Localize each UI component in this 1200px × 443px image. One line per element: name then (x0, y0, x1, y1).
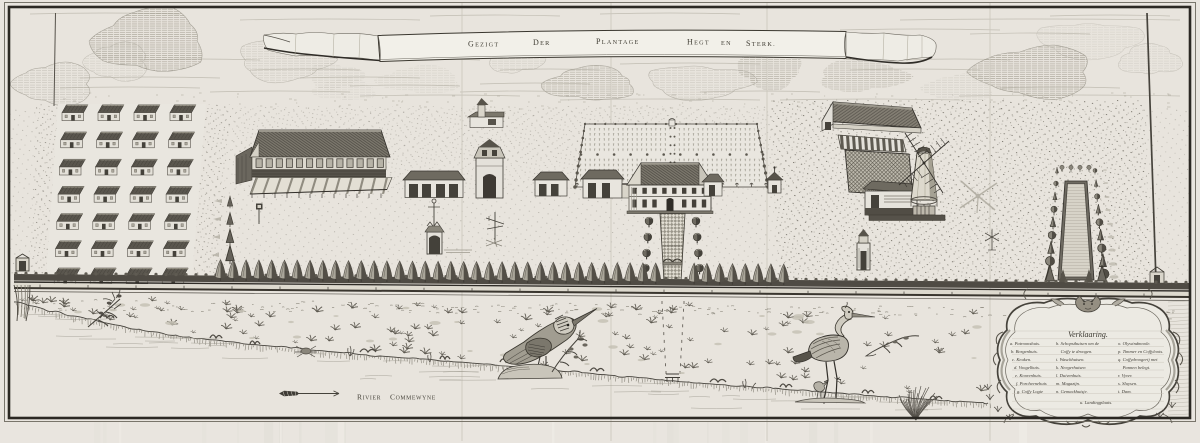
svg-text:DER: DER (533, 38, 551, 47)
svg-text:d. Voogelhuis.: d. Voogelhuis. (1014, 365, 1040, 370)
svg-text:r. Vyver.: r. Vyver. (1118, 373, 1133, 378)
svg-text:i. Waschhuisen.: i. Waschhuisen. (1056, 357, 1085, 362)
svg-text:q. Coffydroogerij met: q. Coffydroogerij met (1118, 357, 1158, 362)
svg-text:Verklaaring.: Verklaaring. (1068, 330, 1108, 339)
svg-text:l. Duivenhuis.: l. Duivenhuis. (1056, 373, 1082, 378)
svg-text:p. Timmer en Coffyloots.: p. Timmer en Coffyloots. (1117, 349, 1163, 354)
svg-text:b. Borgenhuis.: b. Borgenhuis. (1011, 349, 1038, 354)
svg-text:c. Keuken.: c. Keuken. (1012, 357, 1031, 362)
svg-text:m. Magazijn.: m. Magazijn. (1056, 381, 1080, 386)
svg-text:e. Koorenhuis.: e. Koorenhuis. (1015, 373, 1042, 378)
svg-text:EN: EN (721, 40, 732, 47)
svg-text:o. Olywindmoole.: o. Olywindmoole. (1118, 341, 1151, 346)
svg-text:GEZIGT: GEZIGT (468, 40, 499, 49)
svg-text:HEGT: HEGT (687, 38, 710, 47)
svg-text:n. Gemackhuisje.: n. Gemackhuisje. (1056, 389, 1088, 394)
svg-text:g. Coffy Logie: g. Coffy Logie (1017, 389, 1043, 394)
svg-text:f. Porcheenehuis: f. Porcheenehuis (1016, 381, 1047, 386)
svg-text:k. Neegerhuisen: k. Neegerhuisen (1056, 365, 1086, 370)
svg-text:Pannen belegt.: Pannen belegt. (1118, 365, 1150, 370)
svg-text:a. Patroonshuis.: a. Patroonshuis. (1010, 341, 1040, 346)
svg-text:s. Sluysen.: s. Sluysen. (1118, 381, 1137, 386)
svg-text:STERK.: STERK. (746, 39, 776, 48)
svg-text:h. Schopsthuisen om de: h. Schopsthuisen om de (1056, 341, 1099, 346)
svg-text:Coffy te droogen.: Coffy te droogen. (1056, 349, 1092, 354)
svg-text:u. Landingplaats.: u. Landingplaats. (1080, 400, 1112, 405)
svg-text:t. Dam.: t. Dam. (1118, 389, 1132, 394)
svg-text:PLANTAGE: PLANTAGE (596, 37, 640, 46)
